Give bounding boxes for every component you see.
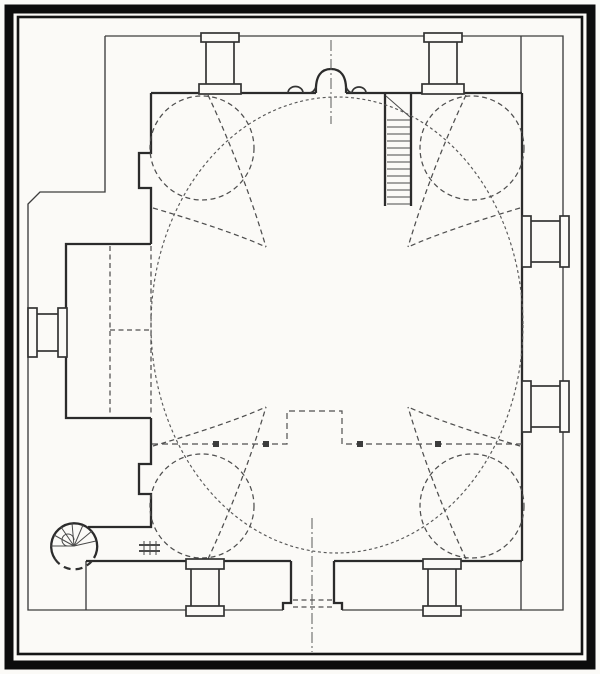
pier-south-left-shaft (191, 568, 219, 610)
gallery-post (213, 441, 219, 447)
pier-east-upper-shaft (530, 221, 562, 262)
pendentive-arc (208, 407, 266, 559)
gallery-post (435, 441, 441, 447)
gallery-post (263, 441, 269, 447)
corner-exedra-bottom-right (420, 454, 524, 558)
pier-east-lower-base (560, 381, 569, 432)
corner-exedra-top-right (420, 96, 524, 200)
oval-dome-outline (151, 97, 523, 553)
pier-north-right-base (422, 84, 464, 94)
spiral-stair-tread (72, 523, 74, 546)
pier-north-left-cap (201, 33, 239, 42)
pendentive-arc (408, 208, 520, 247)
pier-south-left-base (186, 606, 224, 616)
scanned-floor-plan-photo (0, 0, 600, 674)
pier-south-right-cap (423, 559, 461, 569)
pier-north-left-base (199, 84, 241, 94)
precinct-outline-top-right (105, 36, 563, 610)
pier-annex-west-base (58, 308, 67, 357)
photo-border-inner (18, 17, 582, 654)
west-wall-lower-with-pilaster (88, 418, 151, 527)
pier-east-lower-shaft (530, 386, 562, 427)
west-wall-upper-with-pilaster (139, 93, 151, 244)
pier-east-upper-cap (522, 216, 531, 267)
pier-east-lower-cap (522, 381, 531, 432)
pier-south-left-cap (186, 559, 224, 569)
pier-north-right-cap (424, 33, 462, 42)
spiral-stair-outline-dashed (55, 558, 94, 569)
pier-east-upper-base (560, 216, 569, 267)
gallery-edge-dashed (152, 411, 522, 444)
pier-south-right-shaft (428, 568, 456, 610)
entrance-jamb-right (334, 561, 342, 610)
annex-room-walls (66, 244, 151, 418)
corner-exedra-top-left (150, 96, 254, 200)
pier-annex-west-cap (28, 308, 37, 357)
floor-plan-drawing (0, 0, 600, 674)
pier-south-right-base (423, 606, 461, 616)
pendentive-arc (408, 407, 466, 559)
gallery-post (357, 441, 363, 447)
pendentive-arc (408, 95, 466, 247)
pendentive-arc (208, 95, 266, 247)
corner-exedra-bottom-left (150, 454, 254, 558)
entrance-jamb-left (283, 561, 291, 610)
spiral-stair-outline-solid (51, 523, 97, 559)
photo-border-outer (9, 9, 591, 665)
pendentive-arc (153, 208, 266, 247)
